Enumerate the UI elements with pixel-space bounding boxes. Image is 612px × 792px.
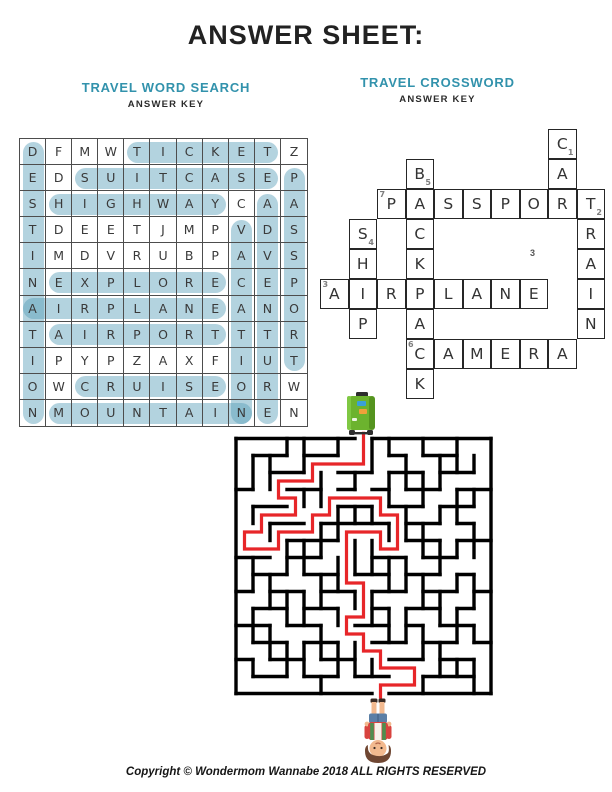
word-search-cell: C [72, 374, 98, 400]
crossword-cell: N [577, 309, 606, 339]
crossword-cell: S4 [349, 219, 378, 249]
crossword-clue-number: 1 [568, 149, 574, 157]
word-search-cell: A [229, 243, 255, 269]
crossword-cell: A [548, 159, 577, 189]
word-search-cell: R [72, 296, 98, 322]
crossword-clue-number: 2 [596, 209, 602, 217]
word-search-cell: P [281, 269, 307, 295]
suitcase-icon [343, 392, 381, 438]
word-search-cell: N [20, 269, 46, 295]
word-search-cell: T [255, 139, 281, 165]
word-search-cell: T [150, 165, 176, 191]
crossword-cell: A [463, 279, 492, 309]
word-search-cell: S [281, 243, 307, 269]
crossword-cell: C6 [406, 339, 435, 369]
word-search-cell: O [150, 322, 176, 348]
word-search-cell: C [177, 139, 203, 165]
crossword-clue-number: 6 [408, 341, 414, 349]
word-search-cell: W [150, 191, 176, 217]
word-search-cell: E [98, 217, 124, 243]
word-search-cell: I [20, 243, 46, 269]
word-search-cell: D [255, 217, 281, 243]
word-search-cell: E [255, 400, 281, 426]
word-search-cell: H [124, 191, 150, 217]
traveler-upside-down-icon [356, 694, 400, 766]
word-search-cell: A [203, 165, 229, 191]
word-search-letters: DFMWTICKETZEDSUITCASEPSHIGHWAYCAATDEETJM… [20, 139, 307, 426]
crossword-cell: R [548, 189, 577, 219]
crossword-title: TRAVEL CROSSWORD [330, 75, 545, 90]
word-search-cell: A [177, 191, 203, 217]
word-search-cell: R [98, 374, 124, 400]
word-search-cell: P [124, 322, 150, 348]
word-search-cell: P [98, 296, 124, 322]
word-search-cell: A [281, 191, 307, 217]
word-search-cell: I [72, 322, 98, 348]
word-search-cell: E [46, 269, 72, 295]
word-search-cell: E [203, 296, 229, 322]
word-search-cell: Y [72, 348, 98, 374]
word-search-title: TRAVEL WORD SEARCH [60, 80, 272, 95]
word-search-cell: O [150, 269, 176, 295]
word-search-cell: U [150, 243, 176, 269]
crossword-cell: A3 [320, 279, 349, 309]
word-search-cell: A [150, 348, 176, 374]
word-search-cell: T [20, 217, 46, 243]
word-search-cell: R [281, 322, 307, 348]
word-search-cell: N [255, 296, 281, 322]
crossword-clue-number: 4 [368, 239, 374, 247]
word-search-cell: O [281, 296, 307, 322]
crossword-clue-number: 5 [425, 179, 431, 187]
word-search-cell: K [203, 139, 229, 165]
crossword-cell: H [349, 249, 378, 279]
maze [233, 431, 495, 703]
crossword-cell: S [434, 189, 463, 219]
word-search-cell: I [46, 296, 72, 322]
word-search-cell: N [177, 296, 203, 322]
word-search-cell: R [177, 269, 203, 295]
word-search-cell: E [72, 217, 98, 243]
word-search-cell: W [281, 374, 307, 400]
word-search-cell: I [150, 374, 176, 400]
word-search-cell: T [150, 400, 176, 426]
word-search-cell: S [229, 165, 255, 191]
word-search-cell: Z [281, 139, 307, 165]
word-search-grid: DFMWTICKETZEDSUITCASEPSHIGHWAYCAATDEETJM… [19, 138, 308, 427]
word-search-cell: S [281, 217, 307, 243]
word-search-cell: C [177, 165, 203, 191]
crossword-cell: M [463, 339, 492, 369]
word-search-cell: N [20, 400, 46, 426]
word-search-cell: E [255, 269, 281, 295]
crossword-cell: B5 [406, 159, 435, 189]
word-search-cell: F [46, 139, 72, 165]
word-search-cell: X [177, 348, 203, 374]
word-search-cell: S [72, 165, 98, 191]
word-search-cell: M [177, 217, 203, 243]
word-search-cell: M [72, 139, 98, 165]
crossword-cell: P [349, 309, 378, 339]
word-search-cell: B [177, 243, 203, 269]
word-search-cell: Z [124, 348, 150, 374]
word-search-cell: T [229, 322, 255, 348]
word-search-cell: M [46, 243, 72, 269]
crossword-cell: I [349, 279, 378, 309]
crossword-clue-number: 7 [380, 191, 386, 199]
word-search-cell: P [98, 348, 124, 374]
crossword-cell: O [520, 189, 549, 219]
word-search-cell: D [46, 165, 72, 191]
word-search-cell: J [150, 217, 176, 243]
crossword-cell: C [406, 219, 435, 249]
crossword-cell: I [577, 279, 606, 309]
word-search-cell: A [46, 322, 72, 348]
crossword-cell: T2 [577, 189, 606, 219]
word-search-cell: O [20, 374, 46, 400]
crossword-cell: K [406, 249, 435, 279]
word-search-cell: V [255, 243, 281, 269]
word-search-cell: A [229, 296, 255, 322]
crossword-cell: S [463, 189, 492, 219]
crossword-cell: K [406, 369, 435, 399]
word-search-cell: R [124, 243, 150, 269]
word-search-cell: E [255, 165, 281, 191]
word-search-cell: W [98, 139, 124, 165]
crossword-cell: E [520, 279, 549, 309]
word-search-cell: P [46, 348, 72, 374]
crossword-cell: P [406, 279, 435, 309]
crossword-cell: A [434, 339, 463, 369]
word-search-cell: I [20, 348, 46, 374]
word-search-cell: T [124, 217, 150, 243]
crossword-cell: A [577, 249, 606, 279]
page-title: ANSWER SHEET: [0, 20, 612, 51]
word-search-cell: O [72, 400, 98, 426]
word-search-cell: U [98, 400, 124, 426]
word-search-cell: F [203, 348, 229, 374]
word-search-cell: U [98, 165, 124, 191]
word-search-cell: U [255, 348, 281, 374]
crossword-cell: N [491, 279, 520, 309]
word-search-cell: C [229, 269, 255, 295]
crossword-cell: R [377, 279, 406, 309]
crossword-cell: P7 [377, 189, 406, 219]
word-search-cell: S [20, 191, 46, 217]
word-search-cell: D [20, 139, 46, 165]
word-search-subtitle: ANSWER KEY [60, 99, 272, 110]
word-search-header: TRAVEL WORD SEARCH ANSWER KEY [60, 80, 272, 110]
word-search-cell: U [124, 374, 150, 400]
word-search-cell: S [177, 374, 203, 400]
crossword-cell: L [434, 279, 463, 309]
word-search-cell: I [72, 191, 98, 217]
crossword-cell: A [406, 189, 435, 219]
word-search-cell: N [281, 400, 307, 426]
crossword-cell: R [577, 219, 606, 249]
word-search-cell: D [46, 217, 72, 243]
word-search-cell: I [150, 139, 176, 165]
word-search-cell: R [98, 322, 124, 348]
crossword-cell: E [491, 339, 520, 369]
crossword-cell: A [548, 339, 577, 369]
crossword-clue-number: 3 [323, 281, 329, 289]
word-search-cell: E [229, 139, 255, 165]
word-search-cell: I [203, 400, 229, 426]
word-search-cell: I [124, 165, 150, 191]
word-search-cell: I [229, 348, 255, 374]
word-search-cell: P [281, 165, 307, 191]
word-search-cell: E [20, 165, 46, 191]
word-search-cell: T [124, 139, 150, 165]
word-search-cell: R [255, 374, 281, 400]
crossword-subtitle: ANSWER KEY [330, 94, 545, 105]
word-search-cell: N [229, 400, 255, 426]
word-search-cell: D [72, 243, 98, 269]
crossword-stray-number: 3 [530, 248, 535, 258]
word-search-cell: P [203, 217, 229, 243]
crossword-cell: R [520, 339, 549, 369]
word-search-cell: G [98, 191, 124, 217]
crossword-cell: A [406, 309, 435, 339]
word-search-cell: V [98, 243, 124, 269]
crossword-header: TRAVEL CROSSWORD ANSWER KEY [330, 75, 545, 105]
word-search-cell: X [72, 269, 98, 295]
word-search-cell: A [20, 296, 46, 322]
word-search-cell: Y [203, 191, 229, 217]
crossword-cell: C1 [548, 129, 577, 159]
word-search-cell: H [46, 191, 72, 217]
word-search-cell: E [203, 374, 229, 400]
word-search-cell: V [229, 217, 255, 243]
word-search-cell: A [177, 400, 203, 426]
word-search-cell: T [20, 322, 46, 348]
word-search-cell: A [150, 296, 176, 322]
word-search-cell: E [203, 269, 229, 295]
word-search-cell: L [124, 269, 150, 295]
word-search-cell: O [229, 374, 255, 400]
word-search-cell: L [124, 296, 150, 322]
crossword-grid: C1B5AP7ASSPORT2S4CRHKAA3IRPLANEIPANC6AME… [320, 129, 606, 400]
crossword-cell: P [491, 189, 520, 219]
word-search-cell: P [98, 269, 124, 295]
word-search-cell: M [46, 400, 72, 426]
word-search-cell: P [203, 243, 229, 269]
word-search-cell: R [177, 322, 203, 348]
word-search-cell: T [255, 322, 281, 348]
copyright-text: Copyright © Wondermom Wannabe 2018 ALL R… [0, 766, 612, 778]
word-search-cell: W [46, 374, 72, 400]
word-search-cell: T [281, 348, 307, 374]
word-search-cell: C [229, 191, 255, 217]
word-search-cell: N [124, 400, 150, 426]
word-search-cell: T [203, 322, 229, 348]
word-search-cell: A [255, 191, 281, 217]
